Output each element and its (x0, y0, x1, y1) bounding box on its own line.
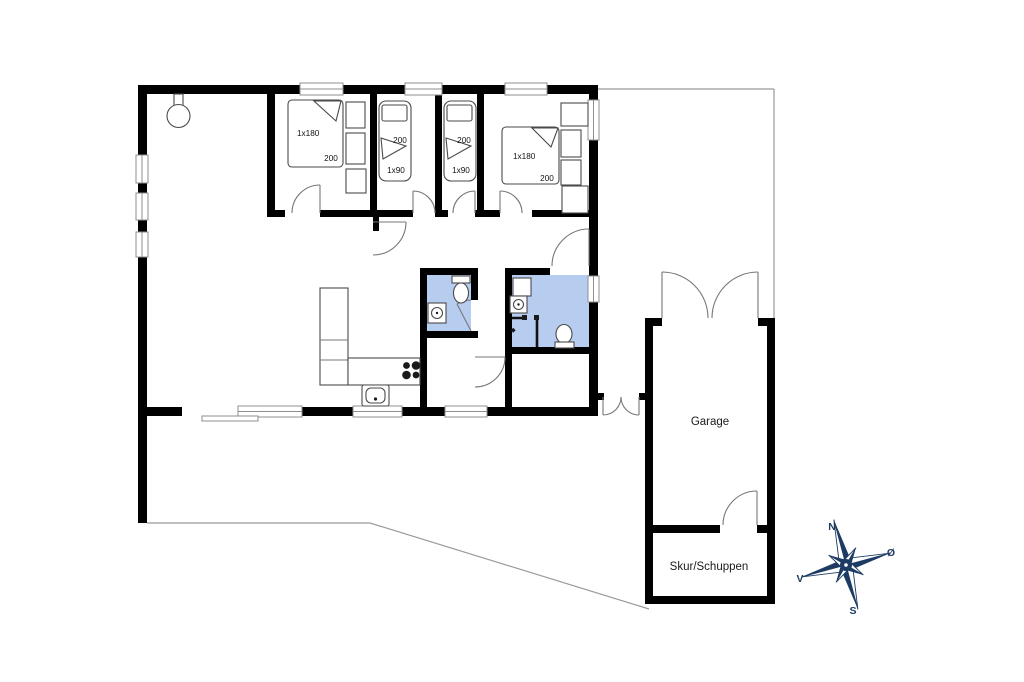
wall-segment (645, 525, 720, 533)
window (136, 232, 148, 257)
wall-segment (645, 596, 775, 604)
door-bedroom-2 (413, 191, 435, 213)
wall-segment (471, 268, 478, 300)
bed-size-label: 1x180 (297, 129, 320, 138)
kitchen (320, 288, 420, 406)
compass-west-label: V (796, 573, 803, 585)
wall-segment (589, 302, 598, 416)
wall-segment (589, 140, 598, 276)
wall-segment (505, 354, 512, 407)
window (505, 83, 547, 95)
shed-label: Skur/Schuppen (670, 561, 749, 573)
bed-size-label: 1x90 (387, 166, 405, 175)
bed-length-label: 200 (393, 136, 407, 145)
wall-segment (589, 85, 598, 100)
bedroom-1: 1x180 200 (288, 100, 366, 193)
wall-segment (645, 318, 653, 604)
garage-label: Garage (691, 416, 729, 428)
window (238, 406, 302, 417)
wall-segment (645, 318, 662, 326)
window (300, 83, 343, 95)
bedroom-3: 200 1x90 (444, 101, 476, 181)
door-bathroom-large (552, 229, 589, 266)
wall-segment (442, 85, 505, 94)
window (588, 100, 599, 140)
wall-segment (487, 407, 598, 416)
wall-segment (370, 93, 377, 210)
wall-segment (435, 93, 442, 210)
sink-icon (428, 303, 446, 323)
bed-size-label: 1x90 (452, 166, 470, 175)
wall-segment (758, 318, 775, 326)
kitchen-sink-icon (362, 385, 389, 406)
gate-double-door (603, 397, 639, 415)
door-shed (723, 491, 757, 525)
compass-south-label: S (849, 605, 856, 617)
wall-segment (475, 210, 500, 217)
dresser-icon (346, 169, 366, 193)
wall-segment (138, 85, 147, 155)
floor-plan-page: 1x180 200 200 1x90 200 1x90 1x180 200 (0, 0, 1024, 682)
terrace-bottom-line (147, 523, 649, 609)
door-bedroom-4 (500, 191, 522, 213)
wall-segment (639, 393, 645, 400)
window (588, 276, 599, 302)
wall-segment (343, 85, 405, 94)
wall-segment (138, 257, 147, 408)
wall-segment (138, 183, 147, 193)
wardrobe-icon (562, 186, 588, 213)
wall-segment (138, 220, 147, 232)
wall-segment (402, 407, 445, 416)
wall-segment (267, 210, 285, 217)
bed-length-label: 200 (540, 174, 554, 183)
wall-segment (138, 407, 182, 416)
nightstand-icon (561, 130, 581, 157)
wardrobe-icon (561, 103, 588, 126)
wall-segment (477, 93, 484, 210)
door-bedroom-1 (292, 185, 320, 213)
door-rear-room (475, 357, 505, 387)
nightstand-icon (561, 160, 581, 185)
bedroom-2: 200 1x90 (379, 101, 411, 181)
window (136, 155, 148, 183)
door-bedroom-3 (453, 191, 475, 213)
shower-icon (513, 278, 531, 296)
wall-segment (320, 210, 413, 217)
compass-rose-icon: N Ø S V (789, 508, 902, 622)
kitchen-cabinet-icon (320, 288, 348, 385)
wall-segment (302, 407, 353, 416)
floor-plan-drawing: 1x180 200 200 1x90 200 1x90 1x180 200 (0, 0, 1024, 682)
bed-size-label: 1x180 (513, 152, 536, 161)
window (405, 83, 442, 95)
toilet-icon (452, 276, 470, 303)
wall-segment (373, 217, 379, 231)
window (353, 406, 402, 417)
bed-length-label: 200 (324, 154, 338, 163)
compass-north-label: N (828, 521, 836, 533)
compass-east-label: Ø (887, 547, 895, 559)
window (136, 193, 148, 220)
wall-segment (435, 210, 448, 217)
ceiling-lamp-icon (167, 94, 190, 128)
wall-segment (420, 268, 478, 275)
window (445, 406, 487, 417)
garage-double-door (662, 272, 758, 318)
doors (292, 185, 758, 525)
wall-segment (757, 525, 775, 533)
wall-segment (505, 347, 598, 354)
pillow-icon (447, 105, 472, 121)
nightstand-icon (346, 133, 365, 164)
bed-length-label: 200 (457, 136, 471, 145)
pillow-icon (382, 105, 407, 121)
wall-segment (138, 85, 300, 94)
kitchen-counter-icon (348, 358, 420, 385)
wall-segment (767, 318, 775, 604)
wall-segment (267, 93, 275, 210)
nightstand-icon (346, 102, 365, 128)
terrace-fence-wall (138, 416, 147, 523)
wall-segment (420, 331, 478, 338)
sink-icon (510, 296, 527, 313)
terrace-sliding-door (202, 416, 258, 421)
